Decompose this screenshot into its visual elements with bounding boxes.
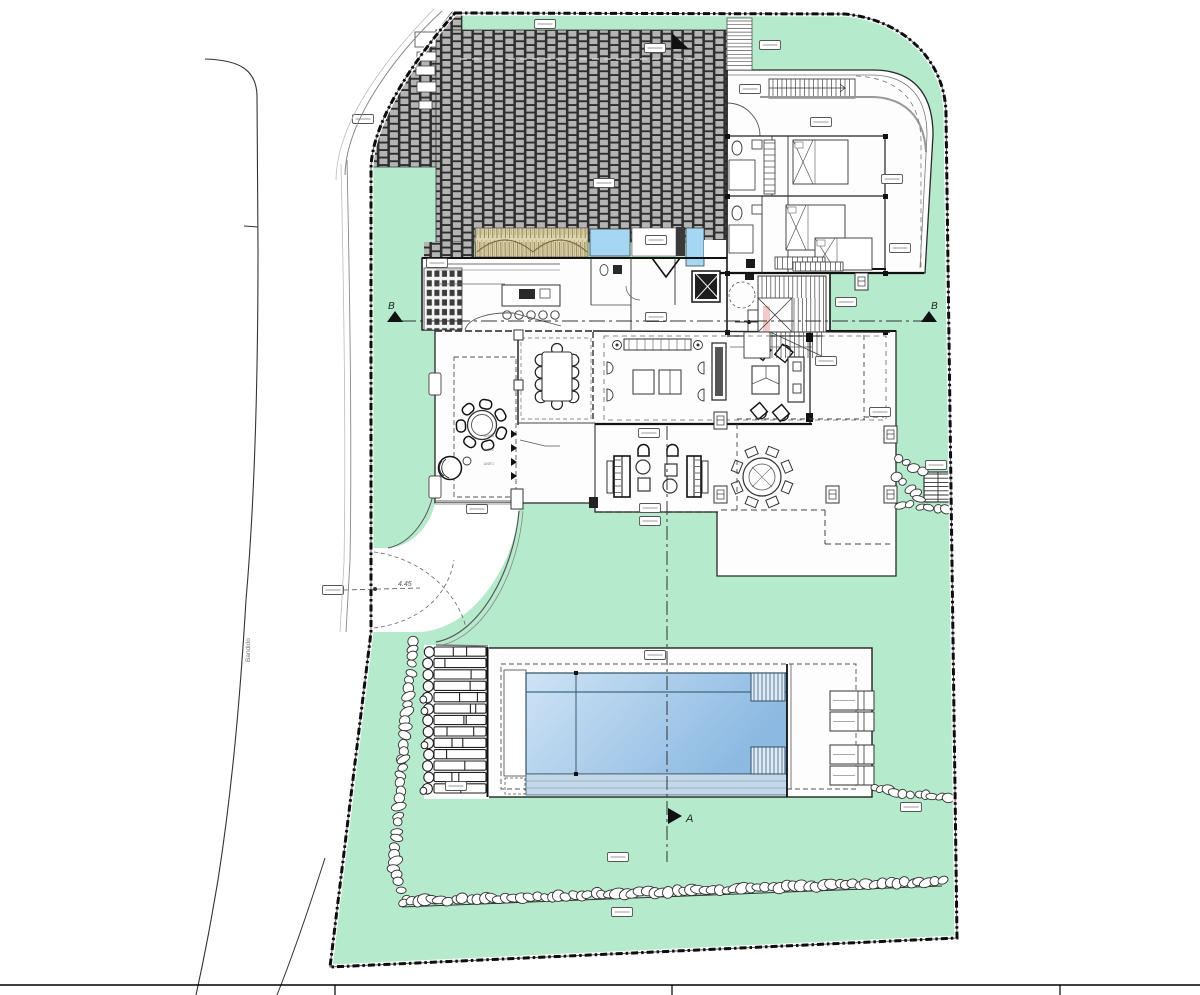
- svg-text:B: B: [388, 301, 395, 312]
- svg-text:UNIT1: UNIT1: [484, 462, 494, 466]
- svg-text:UNIT2: UNIT2: [484, 448, 494, 452]
- svg-text:4.45: 4.45: [398, 581, 412, 588]
- svg-text:Bandido: Bandido: [245, 638, 252, 662]
- svg-text:A: A: [685, 813, 693, 825]
- svg-text:UNIT3: UNIT3: [484, 434, 494, 438]
- svg-text:B: B: [931, 301, 938, 312]
